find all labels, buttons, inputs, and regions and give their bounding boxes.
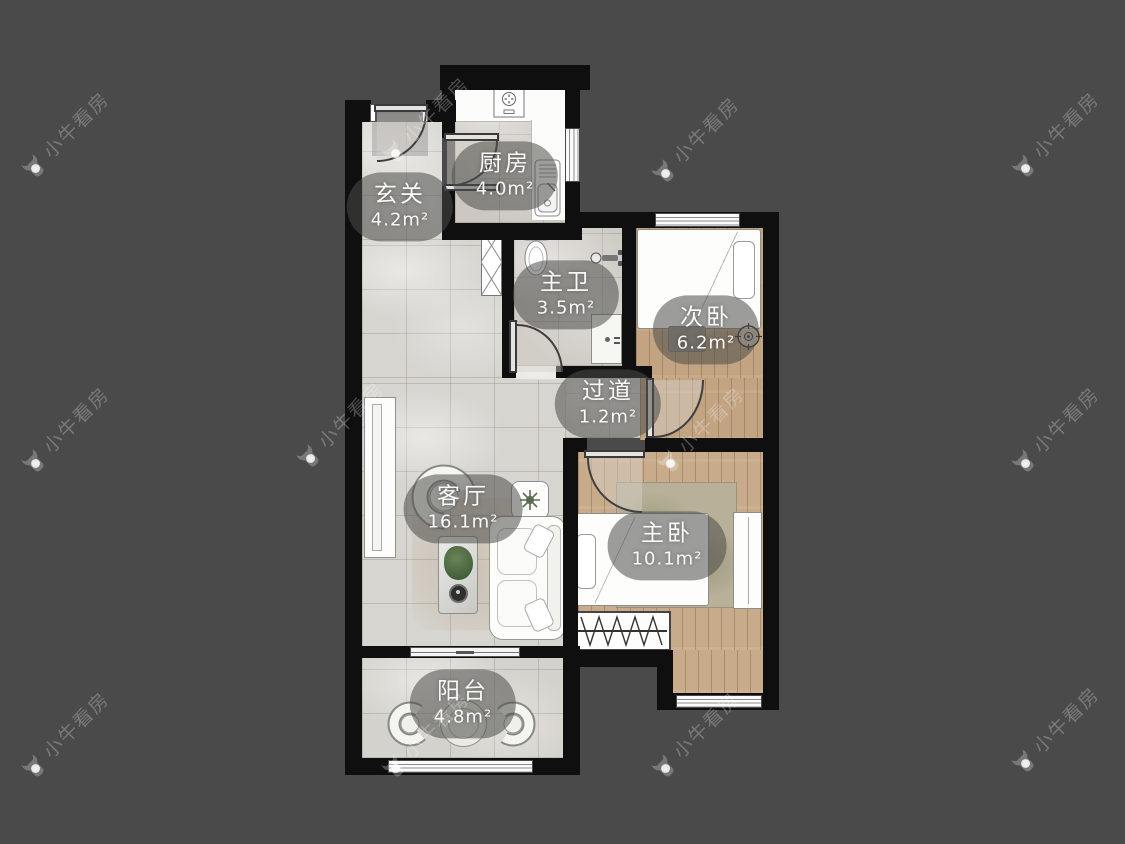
watermark-text: 小牛看房 (36, 685, 114, 763)
bull-logo-icon (16, 444, 51, 479)
room-label-bedroom2: 次卧 6.2m² (653, 295, 759, 364)
watermark-text: 小牛看房 (36, 380, 114, 458)
balcony-sliding-door (410, 647, 520, 657)
watermark: 小牛看房 (1005, 85, 1105, 185)
kitchen-door-panel (444, 133, 499, 141)
plant (444, 546, 473, 580)
room-label-balcony: 阳台 4.8m² (410, 669, 516, 738)
room-area: 16.1m² (428, 511, 499, 533)
watermark: 小牛看房 (15, 85, 115, 185)
bull-logo-icon (646, 749, 681, 784)
master-bedroom-floor-lower (672, 650, 763, 693)
room-name: 客厅 (428, 483, 499, 511)
master-door-panel (584, 450, 645, 458)
watermark-text: 小牛看房 (36, 85, 114, 163)
floorplan-viewer: 厨房 4.0m² 玄关 4.2m² 主卫 3.5m² 次卧 6.2m² 过道 1… (0, 0, 1125, 844)
room-label-bathroom: 主卫 3.5m² (513, 260, 619, 329)
room-name: 主卫 (537, 269, 595, 297)
tray (449, 584, 468, 603)
watermark: 小牛看房 (645, 90, 745, 190)
watermark-text: 小牛看房 (1026, 380, 1104, 458)
bull-logo-icon (646, 154, 681, 189)
room-label-master: 主卧 10.1m² (608, 511, 727, 580)
bull-logo-icon (291, 439, 326, 474)
master-dresser (733, 512, 762, 609)
balcony-window (388, 760, 533, 773)
room-label-entry: 玄关 4.2m² (347, 172, 453, 241)
master-pillow (576, 534, 596, 589)
room-area: 3.5m² (537, 297, 595, 319)
bedroom2-pillow (733, 241, 755, 299)
bull-logo-icon (1006, 744, 1041, 779)
watermark: 小牛看房 (15, 685, 115, 785)
wall (657, 664, 673, 710)
room-label-kitchen: 厨房 4.0m² (452, 141, 558, 210)
wardrobe-rack (573, 611, 671, 651)
bull-logo-icon (16, 149, 51, 184)
room-area: 4.0m² (476, 178, 534, 200)
wall (622, 228, 636, 378)
watermark-text: 小牛看房 (1026, 85, 1104, 163)
wall (442, 88, 455, 138)
watermark: 小牛看房 (15, 380, 115, 480)
watermark: 小牛看房 (1005, 380, 1105, 480)
wall (645, 438, 765, 452)
wall (763, 212, 779, 710)
room-area: 4.8m² (434, 706, 492, 728)
room-name: 主卧 (632, 520, 703, 548)
bull-logo-icon (16, 749, 51, 784)
room-name: 过道 (579, 378, 637, 406)
bull-logo-icon (1006, 149, 1041, 184)
master-window (676, 695, 762, 708)
room-name: 玄关 (371, 181, 429, 209)
watermark-text: 小牛看房 (1026, 680, 1104, 758)
tv-console (364, 397, 396, 558)
stove-icon (493, 86, 525, 118)
bull-logo-icon (1006, 444, 1041, 479)
watermark-text: 小牛看房 (666, 90, 744, 168)
room-area: 4.2m² (371, 209, 429, 231)
room-name: 阳台 (434, 678, 492, 706)
room-area: 6.2m² (677, 332, 735, 354)
bathroom-door-panel (509, 320, 517, 373)
watermark: 小牛看房 (1005, 680, 1105, 780)
wall (563, 438, 578, 650)
kitchen-window (565, 128, 580, 182)
room-area: 10.1m² (632, 548, 703, 570)
room-area: 1.2m² (579, 406, 637, 428)
room-name: 厨房 (476, 150, 534, 178)
room-label-living: 客厅 16.1m² (404, 474, 523, 543)
room-name: 次卧 (677, 304, 735, 332)
room-label-corridor: 过道 1.2m² (555, 369, 661, 438)
entry-door-panel (374, 104, 428, 112)
bedroom2-window (655, 213, 740, 227)
